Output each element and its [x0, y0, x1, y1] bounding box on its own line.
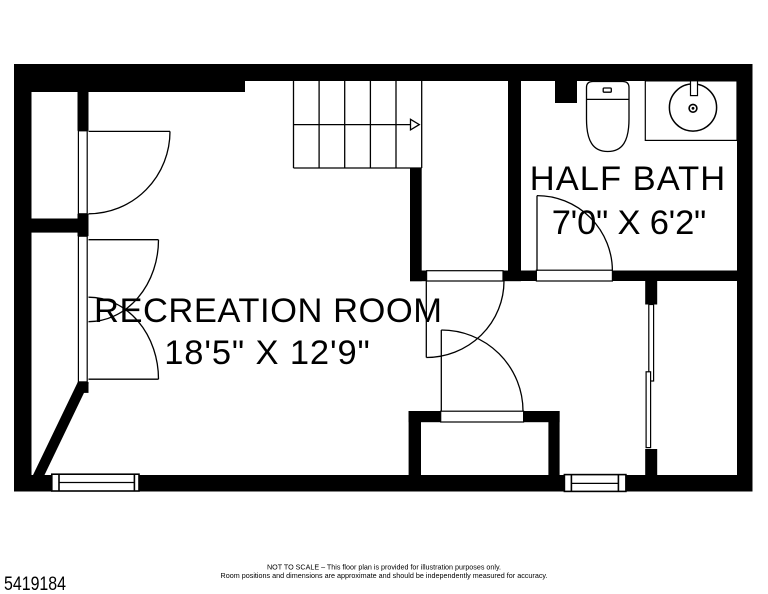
svg-text:5419184: 5419184 [4, 574, 66, 594]
svg-text:18'5" X 12'9": 18'5" X 12'9" [164, 334, 370, 372]
svg-text:7'0" X 6'2": 7'0" X 6'2" [552, 204, 707, 242]
svg-text:RECREATION ROOM: RECREATION ROOM [94, 292, 442, 330]
svg-text:HALF BATH: HALF BATH [530, 160, 725, 198]
svg-text:Room positions and dimensions: Room positions and dimensions are approx… [221, 571, 548, 580]
